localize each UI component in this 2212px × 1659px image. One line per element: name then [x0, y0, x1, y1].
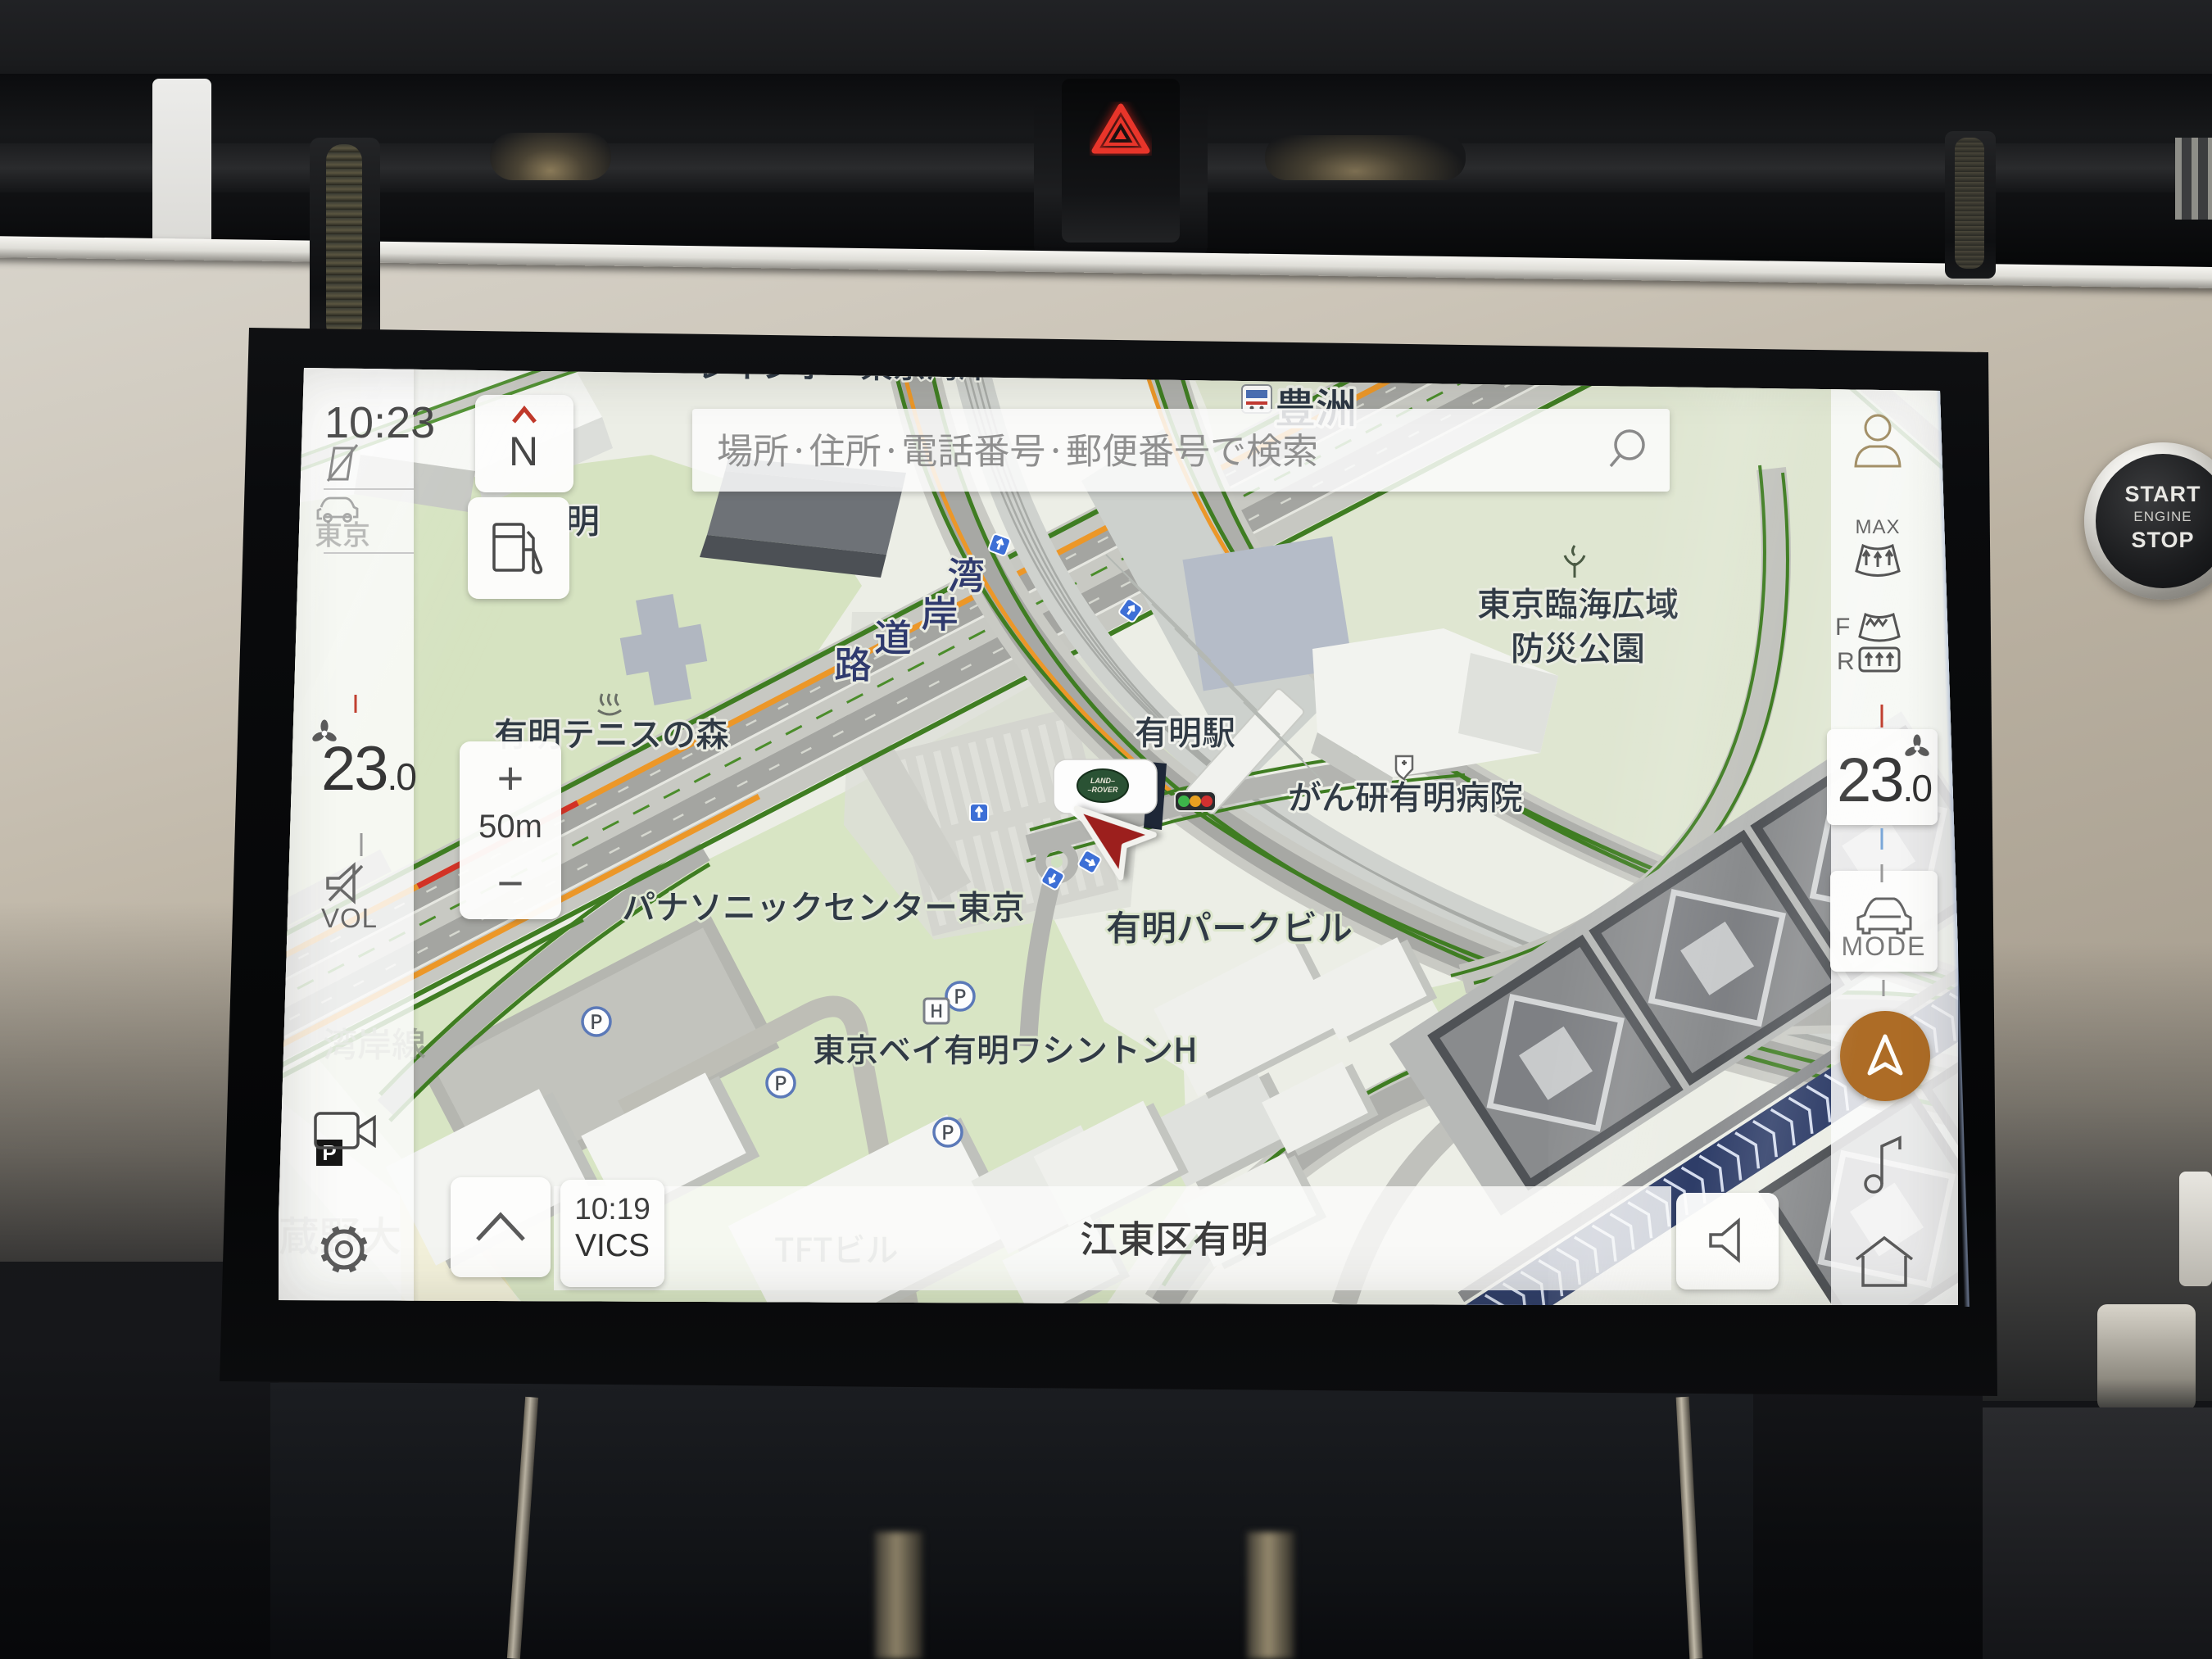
svg-text:LAND–: LAND–: [1090, 777, 1115, 785]
svg-text:–ROVER: –ROVER: [1087, 786, 1118, 794]
